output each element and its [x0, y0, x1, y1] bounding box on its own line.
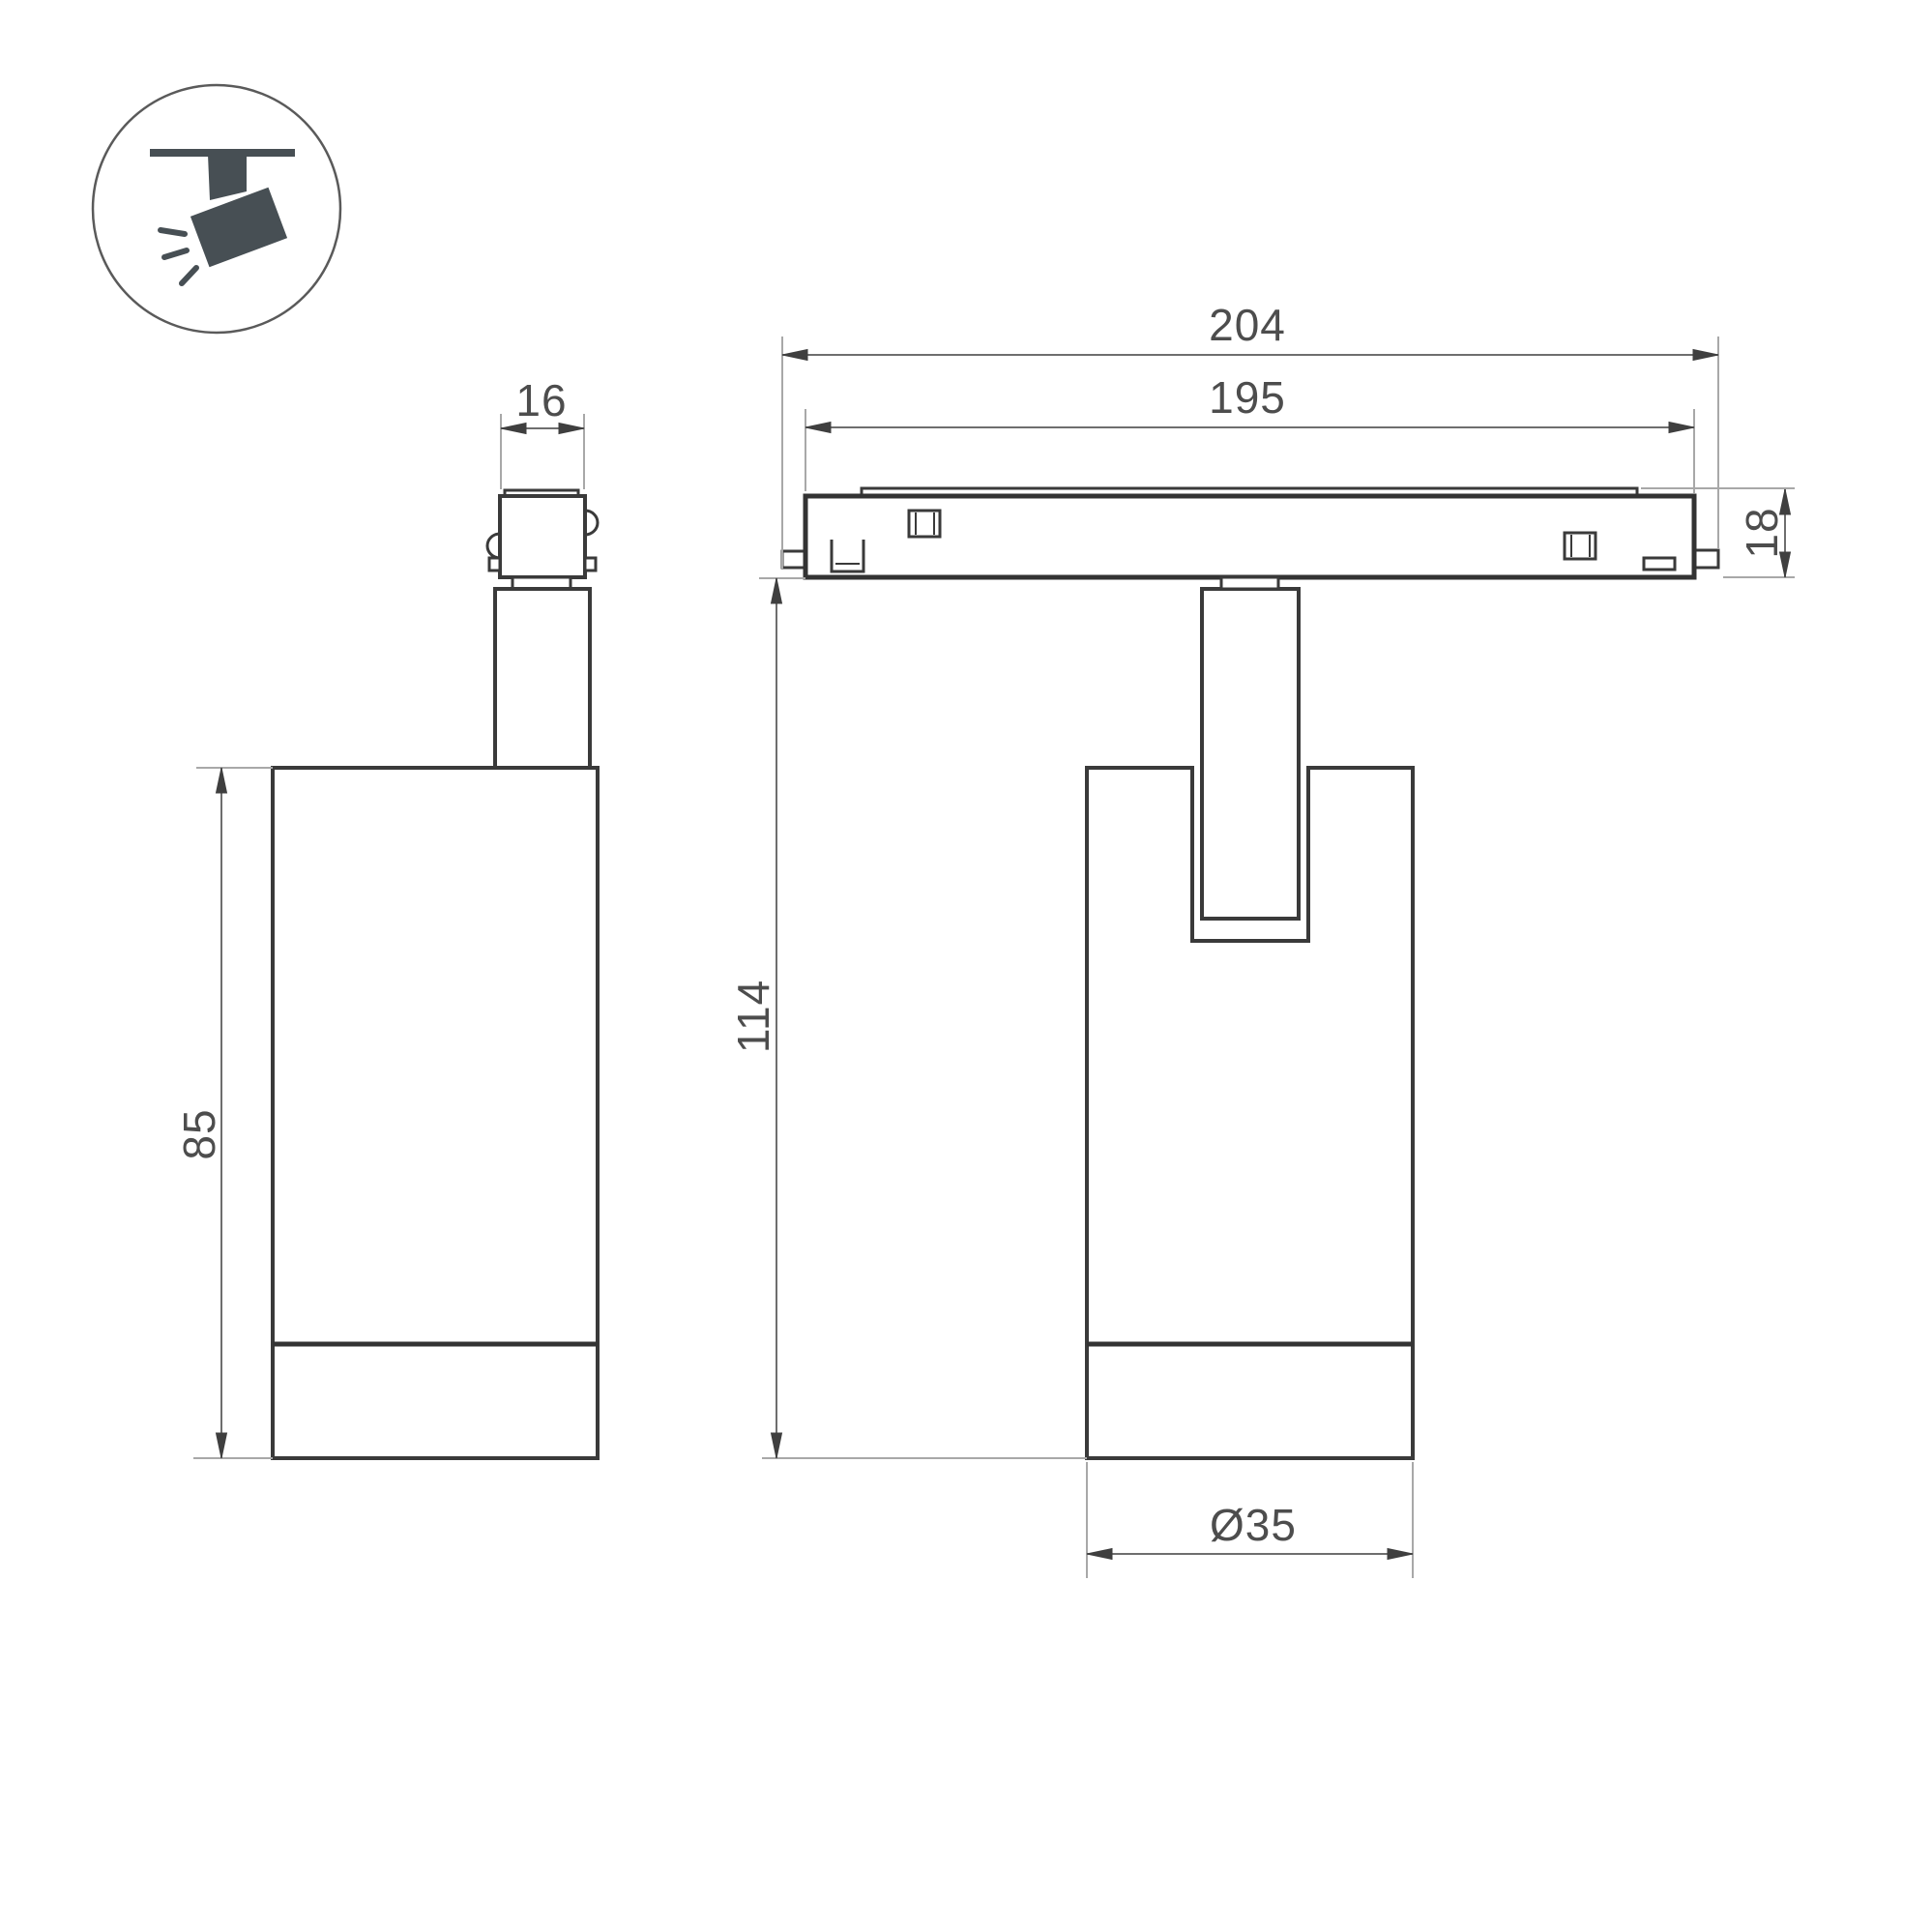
side-view [273, 490, 598, 1458]
dim-label-18: 18 [1737, 507, 1787, 558]
side-adapter-box [500, 496, 585, 577]
side-stem [495, 589, 590, 768]
dim-label-diameter: Ø35 [1210, 1500, 1297, 1550]
dimension-drawing-canvas: 16 85 204 195 18 [0, 0, 1932, 1932]
front-stem [1202, 589, 1299, 919]
drawing-page: 16 85 204 195 18 [0, 0, 1932, 1932]
dim-overall-height: 114 [728, 578, 1087, 1458]
dim-body-diameter: Ø35 [1087, 1462, 1413, 1578]
dim-label-195: 195 [1209, 372, 1286, 423]
track-lug-right [1694, 550, 1718, 568]
side-adapter-foot-left [489, 558, 500, 571]
side-adapter-foot-right [585, 558, 596, 571]
icon-light-ray-1 [161, 230, 185, 234]
side-body [273, 768, 598, 1458]
dim-label-85: 85 [174, 1108, 224, 1159]
spotlight-icon [93, 85, 340, 333]
dim-label-16: 16 [515, 375, 567, 425]
front-stem-nub [1221, 577, 1278, 589]
dim-label-204: 204 [1209, 300, 1286, 350]
dim-adapter-width: 16 [501, 375, 584, 489]
dim-track-inner: 195 [805, 372, 1694, 493]
dim-label-114: 114 [728, 980, 778, 1053]
front-view [782, 488, 1718, 1458]
track-lug-left [782, 551, 805, 568]
dim-body-height: 85 [174, 768, 273, 1458]
